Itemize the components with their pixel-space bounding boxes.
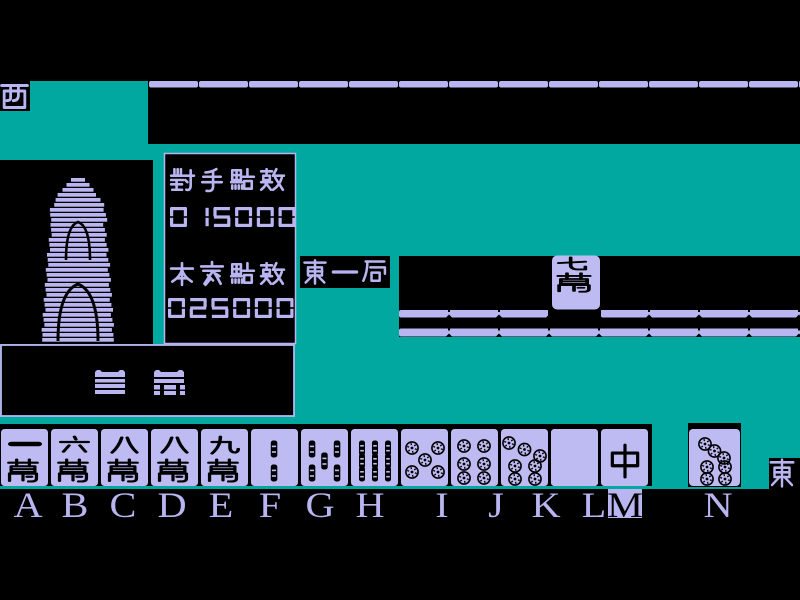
svg-text:E: E bbox=[209, 486, 234, 526]
svg-text:M: M bbox=[607, 486, 643, 526]
svg-text:B: B bbox=[62, 486, 89, 526]
svg-text:H: H bbox=[355, 486, 384, 526]
svg-text:A: A bbox=[13, 486, 43, 526]
svg-text:G: G bbox=[305, 486, 334, 526]
svg-text:I: I bbox=[435, 486, 448, 526]
svg-text:K: K bbox=[531, 486, 561, 526]
svg-text:N: N bbox=[703, 486, 732, 526]
svg-text:C: C bbox=[110, 486, 137, 526]
svg-text:F: F bbox=[259, 486, 281, 526]
svg-text:D: D bbox=[157, 486, 186, 526]
svg-text:J: J bbox=[488, 486, 504, 526]
svg-text:L: L bbox=[582, 486, 607, 526]
